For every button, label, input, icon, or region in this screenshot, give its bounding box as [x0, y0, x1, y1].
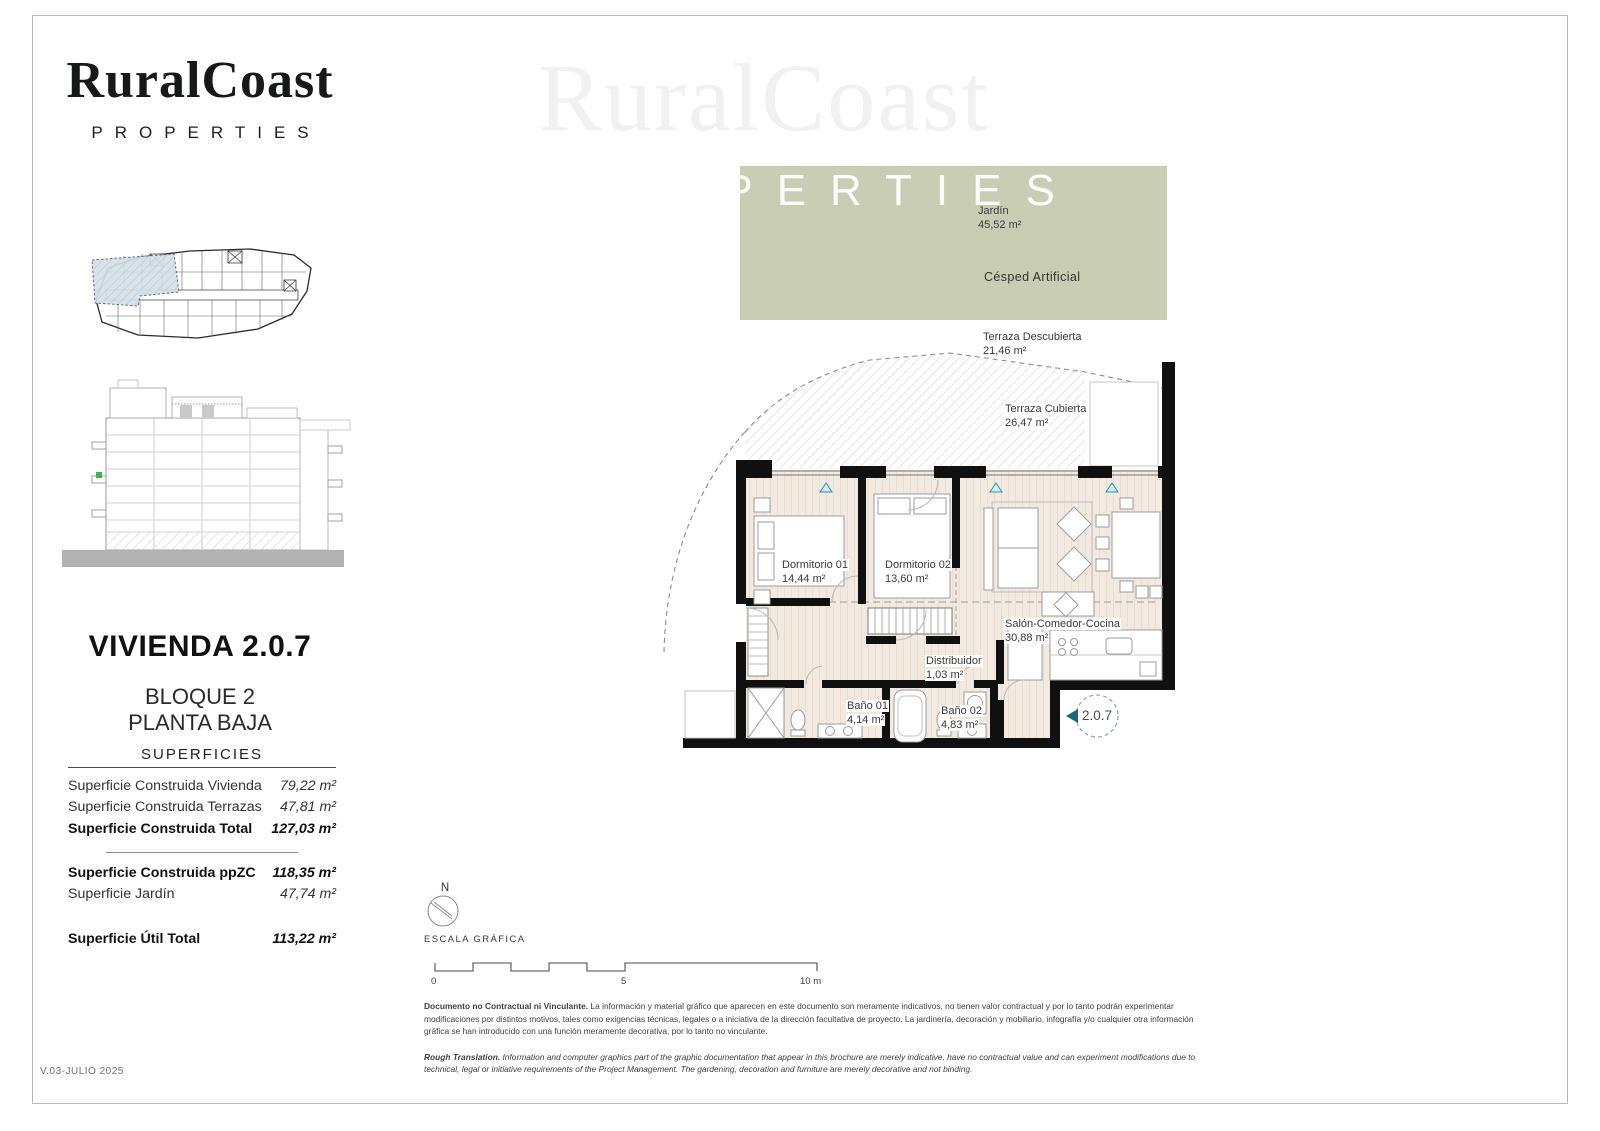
key-plan-figure [92, 249, 311, 338]
scale-tick-5: 5 [621, 976, 626, 987]
north-arrow-icon [431, 903, 452, 919]
terrace-structure [1090, 382, 1158, 466]
disclaimer-en: Rough Translation. Information and compu… [424, 1051, 1218, 1076]
elevation-ground [62, 550, 344, 567]
terrace-covered-label: Terraza Cubierta 26,47 m² [1004, 403, 1087, 431]
scale-label: ESCALA GRÁFICA [424, 934, 525, 945]
unit-badge-number: 2.0.7 [1075, 708, 1119, 723]
room-label-bano-02: Baño 02 4,83 m² [940, 705, 983, 733]
elevation-floor-marker [96, 472, 102, 478]
room-label-bano-01: Baño 01 4,14 m² [846, 700, 889, 728]
room-label-dormitorio-02: Dormitorio 02 13,60 m² [884, 559, 952, 587]
room-label-salon: Salón-Comedor-Cocina 30,88 m² [1004, 618, 1121, 646]
north-label: N [430, 882, 460, 894]
elevation-figure [62, 380, 350, 567]
terrace-open-label: Terraza Descubierta 21,46 m² [983, 331, 1081, 359]
garden-material-label: Césped Artificial [984, 270, 1080, 284]
garden-label: Jardín 45,52 m² [978, 205, 1021, 233]
scale-tick-10: 10 m [800, 976, 821, 987]
scale-bar [435, 963, 817, 971]
disclaimer-es: Documento no Contractual ni Vinculante. … [424, 1000, 1218, 1038]
brochure-page: RuralCoast [0, 0, 1600, 1131]
scale-tick-0: 0 [431, 976, 436, 987]
porch-area [685, 691, 735, 738]
room-label-dormitorio-01: Dormitorio 01 14,44 m² [781, 559, 849, 587]
room-label-distribuidor: Distribuidor 1,03 m² [925, 655, 983, 683]
disclaimer: Documento no Contractual ni Vinculante. … [424, 1000, 1218, 1076]
compass-icon [428, 896, 458, 926]
